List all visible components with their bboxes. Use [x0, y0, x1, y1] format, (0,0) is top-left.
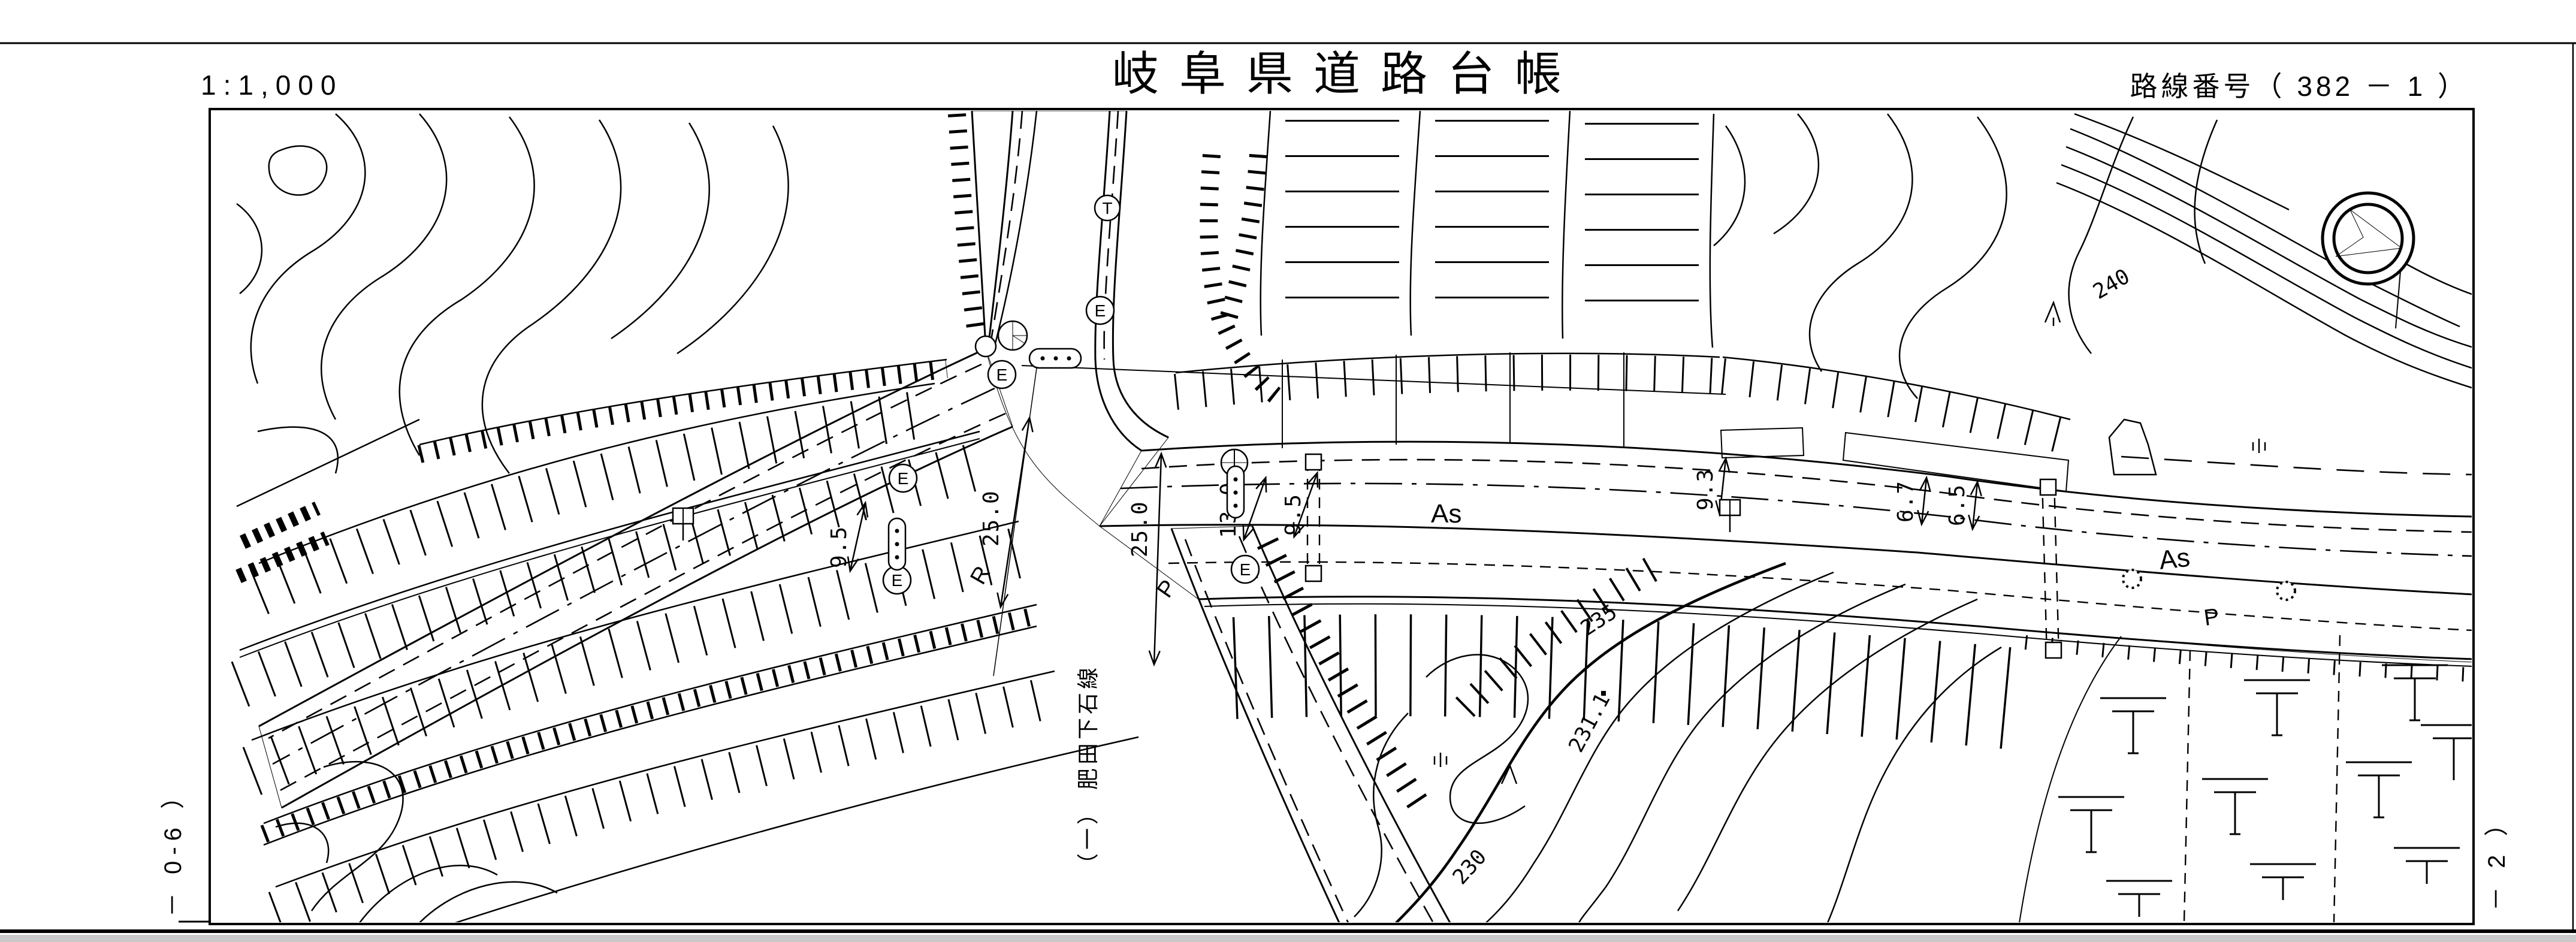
map-canvas: 1:1,000 岐阜県道路台帳 路線番号（ 382 － 1 ） － 0-6 ） … [0, 0, 2576, 942]
pill-marker-v1 [889, 518, 905, 570]
dim-9-5-mid: 9.5 [1281, 493, 1306, 536]
svg-text:E: E [996, 366, 1008, 384]
right-sheet-index: － 2 ） [2484, 807, 2510, 911]
circled-e-3: E [1231, 555, 1259, 583]
svg-text:E: E [1240, 560, 1251, 579]
pill-marker-v2 [1227, 466, 1244, 518]
surface-label-as-right: As [2158, 543, 2191, 575]
pill-marker-h [1029, 349, 1081, 368]
svg-text:E: E [1095, 301, 1106, 320]
tree-icon-1 [2123, 570, 2141, 588]
circled-e-1: E [889, 464, 917, 492]
dim-9-5-west: 9.5 [827, 526, 851, 568]
dim-9-3: 9.3 [1693, 468, 1718, 511]
small-circle-marker [976, 336, 996, 357]
route-number-label: 路線番号（ 382 － 1 ） [2130, 71, 2469, 102]
header: 1:1,000 岐阜県道路台帳 路線番号（ 382 － 1 ） [201, 47, 2469, 102]
benchmark-circle-1 [998, 321, 1027, 350]
svg-text:E: E [898, 469, 909, 488]
scale-label: 1:1,000 [201, 70, 343, 101]
road-register-sheet: 1:1,000 岐阜県道路台帳 路線番号（ 382 － 1 ） － 0-6 ） … [0, 0, 2576, 942]
dim-6-5: 6.5 [1945, 484, 1970, 526]
circled-t: T [1095, 195, 1120, 221]
left-sheet-index: － 0-6 ） [160, 779, 186, 917]
svg-text:E: E [892, 571, 903, 590]
svg-text:T: T [1102, 199, 1112, 218]
tree-icon-2 [2277, 582, 2295, 600]
surface-label-as-left: As [1431, 499, 1461, 529]
dim-6-7: 6.7 [1894, 480, 1918, 523]
circled-e-5: E [1086, 297, 1114, 324]
dim-25-0-a: 25.0 [979, 490, 1004, 547]
map-frame [179, 109, 2474, 924]
page-title: 岐阜県道路台帳 [1112, 47, 1582, 100]
road-name-label: （一） 肥田下石線 [1076, 664, 1100, 875]
circled-e-4: E [988, 361, 1016, 388]
dim-25-0-b: 25.0 [1128, 500, 1152, 557]
